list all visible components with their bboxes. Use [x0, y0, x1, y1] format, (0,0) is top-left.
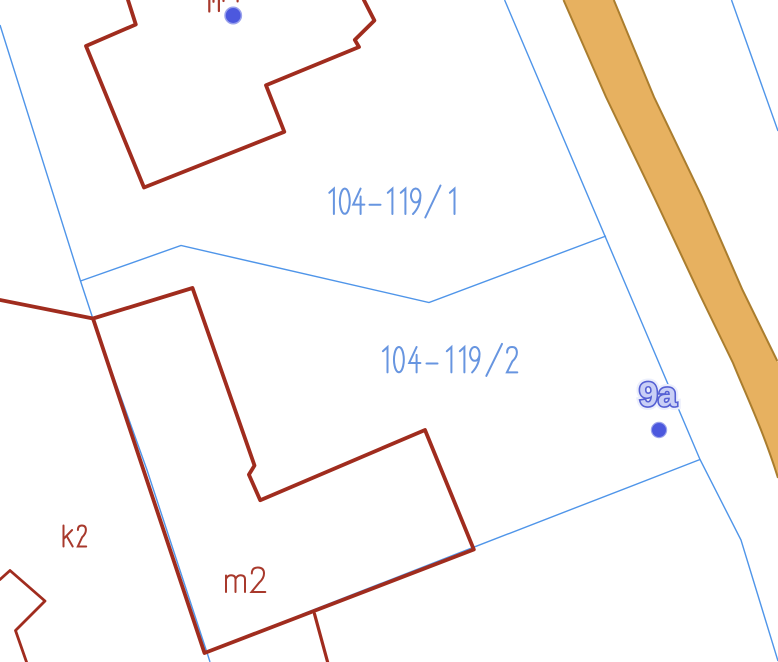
svg-text:9a: 9a — [639, 376, 678, 414]
